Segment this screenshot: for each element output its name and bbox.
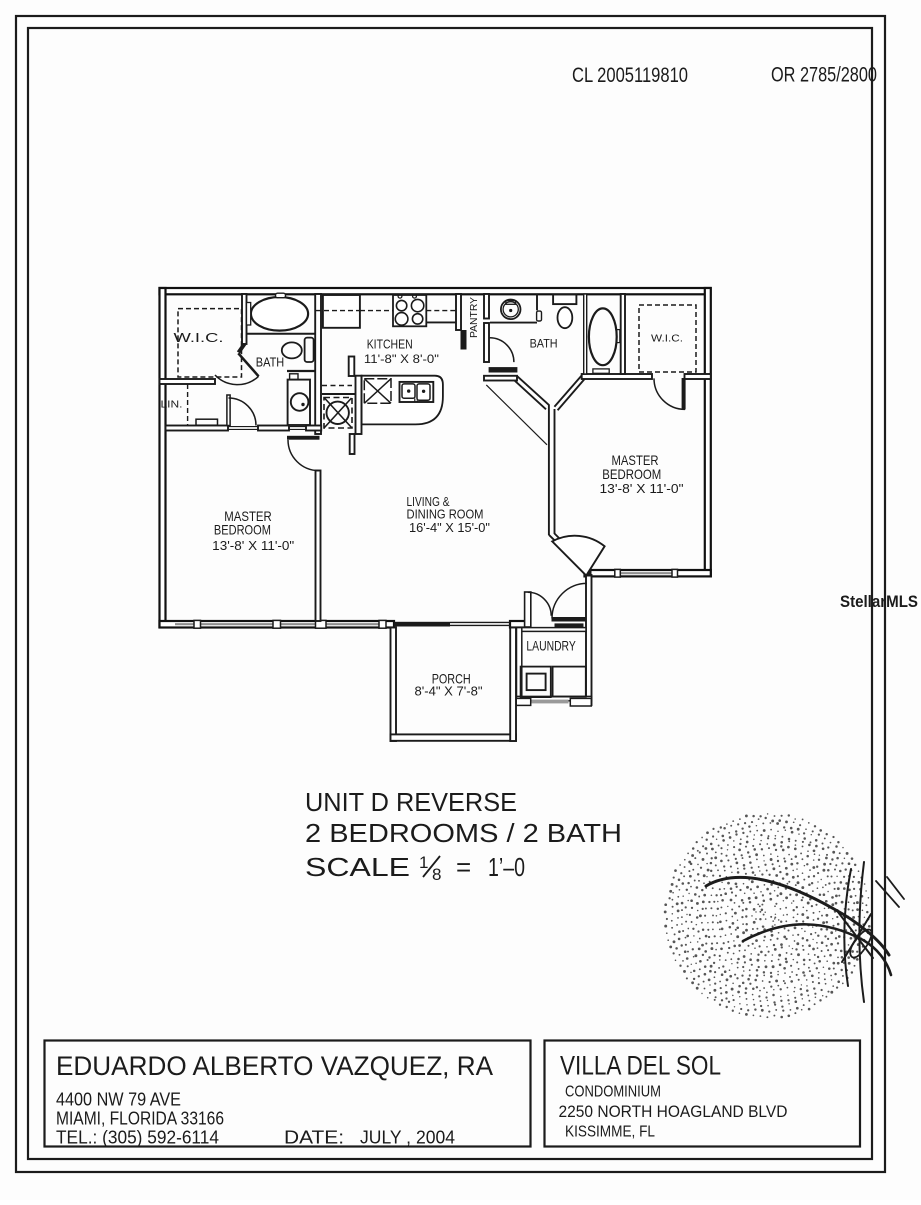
svg-text:PANTRY: PANTRY [468,297,480,338]
svg-text:8'-4" X 7'-8": 8'-4" X 7'-8" [415,683,483,698]
svg-text:13'-8' X 11'-0": 13'-8' X 11'-0" [600,481,684,496]
svg-text:W.I.C.: W.I.C. [651,333,683,345]
svg-text:SCALE: SCALE [305,852,410,882]
svg-text:BEDROOM: BEDROOM [602,466,661,482]
svg-text:1’–0: 1’–0 [488,852,525,882]
svg-text:KISSIMME, FL: KISSIMME, FL [565,1124,655,1141]
svg-text:DATE:: DATE: [284,1128,344,1148]
svg-text:JULY , 2004: JULY , 2004 [360,1128,455,1148]
svg-text:=: = [456,852,471,882]
svg-text:LIN.: LIN. [161,400,183,411]
svg-text:EDUARDO ALBERTO VAZQUEZ, RA: EDUARDO ALBERTO VAZQUEZ, RA [56,1051,493,1081]
svg-text:2 BEDROOMS / 2 BATH: 2 BEDROOMS / 2 BATH [305,818,622,848]
svg-text:OR 2785/2800: OR 2785/2800 [771,64,877,87]
svg-text:BATH: BATH [530,338,558,350]
svg-text:1: 1 [419,853,428,872]
svg-text:4400 NW 79 AVE: 4400 NW 79 AVE [56,1089,181,1110]
svg-text:W.I.C.: W.I.C. [174,330,224,345]
svg-text:VILLA DEL SOL: VILLA DEL SOL [560,1051,721,1081]
svg-text:2250 NORTH HOAGLAND BLVD: 2250 NORTH HOAGLAND BLVD [559,1103,788,1121]
svg-text:13'-8' X 11'-0": 13'-8' X 11'-0" [212,538,294,553]
svg-text:KITCHEN: KITCHEN [367,337,413,351]
svg-text:MIAMI, FLORIDA 33166: MIAMI, FLORIDA 33166 [56,1108,224,1129]
svg-text:LAUNDRY: LAUNDRY [526,639,575,654]
svg-text:CL 2005119810: CL 2005119810 [572,64,688,87]
svg-text:BATH: BATH [256,356,285,370]
svg-text:BEDROOM: BEDROOM [214,522,271,538]
svg-text:8: 8 [432,865,441,884]
svg-text:StellarMLS: StellarMLS [840,592,918,611]
svg-text:UNIT D REVERSE: UNIT D REVERSE [305,787,517,817]
svg-text:16'-4" X 15'-0": 16'-4" X 15'-0" [409,520,490,535]
svg-text:TEL.: (305) 592-6114: TEL.: (305) 592-6114 [56,1127,219,1148]
svg-text:CONDOMINIUM: CONDOMINIUM [565,1084,661,1101]
svg-text:11'-8" X 8'-0": 11'-8" X 8'-0" [364,354,439,366]
